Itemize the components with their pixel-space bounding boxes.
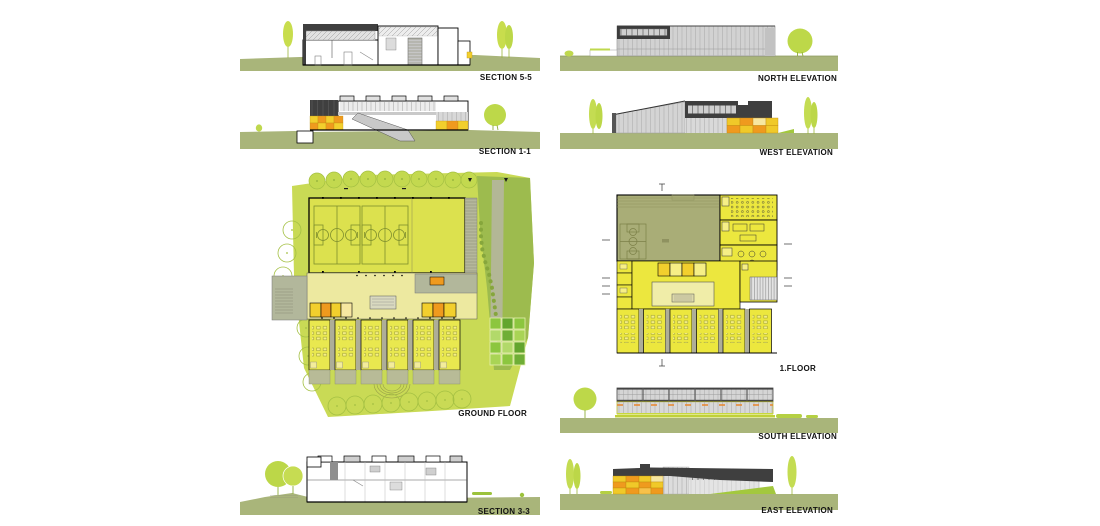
drawing-ground-floor: GROUND FLOOR	[262, 168, 540, 423]
architectural-drawing-sheet: SECTION 5-5 NORTH ELEVATION	[0, 0, 1100, 526]
building-elevation	[612, 101, 794, 133]
drawing-first-floor: 1.FLOOR	[600, 182, 830, 382]
ground-strip	[560, 56, 838, 71]
drawing-label-south-elevation: SOUTH ELEVATION	[758, 432, 837, 441]
drawing-section-1-1: SECTION 1-1	[240, 88, 540, 166]
ground-floor-graphic	[262, 168, 540, 423]
drawing-label-section-1-1: SECTION 1-1	[479, 147, 531, 156]
locker-wall	[613, 476, 663, 494]
building-elevation	[600, 464, 776, 494]
building-elevation	[615, 388, 775, 418]
corridor-zone	[632, 261, 740, 309]
stair-east	[740, 261, 777, 302]
ground-strip	[560, 418, 838, 433]
locker-wall	[727, 118, 778, 133]
drawing-west-elevation: WEST ELEVATION	[560, 88, 860, 168]
drawing-label-east-elevation: EAST ELEVATION	[761, 506, 833, 515]
building-section	[307, 456, 467, 502]
drawing-north-elevation: NORTH ELEVATION	[560, 8, 860, 88]
building-section	[303, 24, 472, 65]
drawing-east-elevation: EAST ELEVATION	[560, 448, 860, 526]
drawing-label-ground-floor: GROUND FLOOR	[458, 409, 527, 418]
foyer-band	[272, 273, 477, 320]
rooms-west	[617, 261, 632, 309]
drawing-label-north-elevation: NORTH ELEVATION	[758, 74, 837, 83]
drawing-section-3-3: SECTION 3-3	[240, 440, 540, 526]
building-elevation	[590, 26, 775, 56]
drawing-label-section-5-5: SECTION 5-5	[480, 73, 532, 82]
drawing-label-section-3-3: SECTION 3-3	[478, 507, 530, 516]
classroom-row	[617, 309, 777, 353]
ground-strip	[560, 133, 838, 149]
special-rooms-east	[720, 195, 777, 270]
locker-wall	[310, 116, 343, 130]
drawing-south-elevation: SOUTH ELEVATION	[560, 378, 860, 444]
drawing-section-5-5: SECTION 5-5	[240, 8, 540, 86]
first-floor-graphic	[600, 182, 830, 382]
drawing-label-west-elevation: WEST ELEVATION	[760, 148, 833, 157]
drawing-label-first-floor: 1.FLOOR	[780, 364, 816, 373]
sports-hall	[309, 197, 465, 273]
sports-hall-void	[617, 195, 720, 261]
sunken-court	[297, 131, 313, 143]
